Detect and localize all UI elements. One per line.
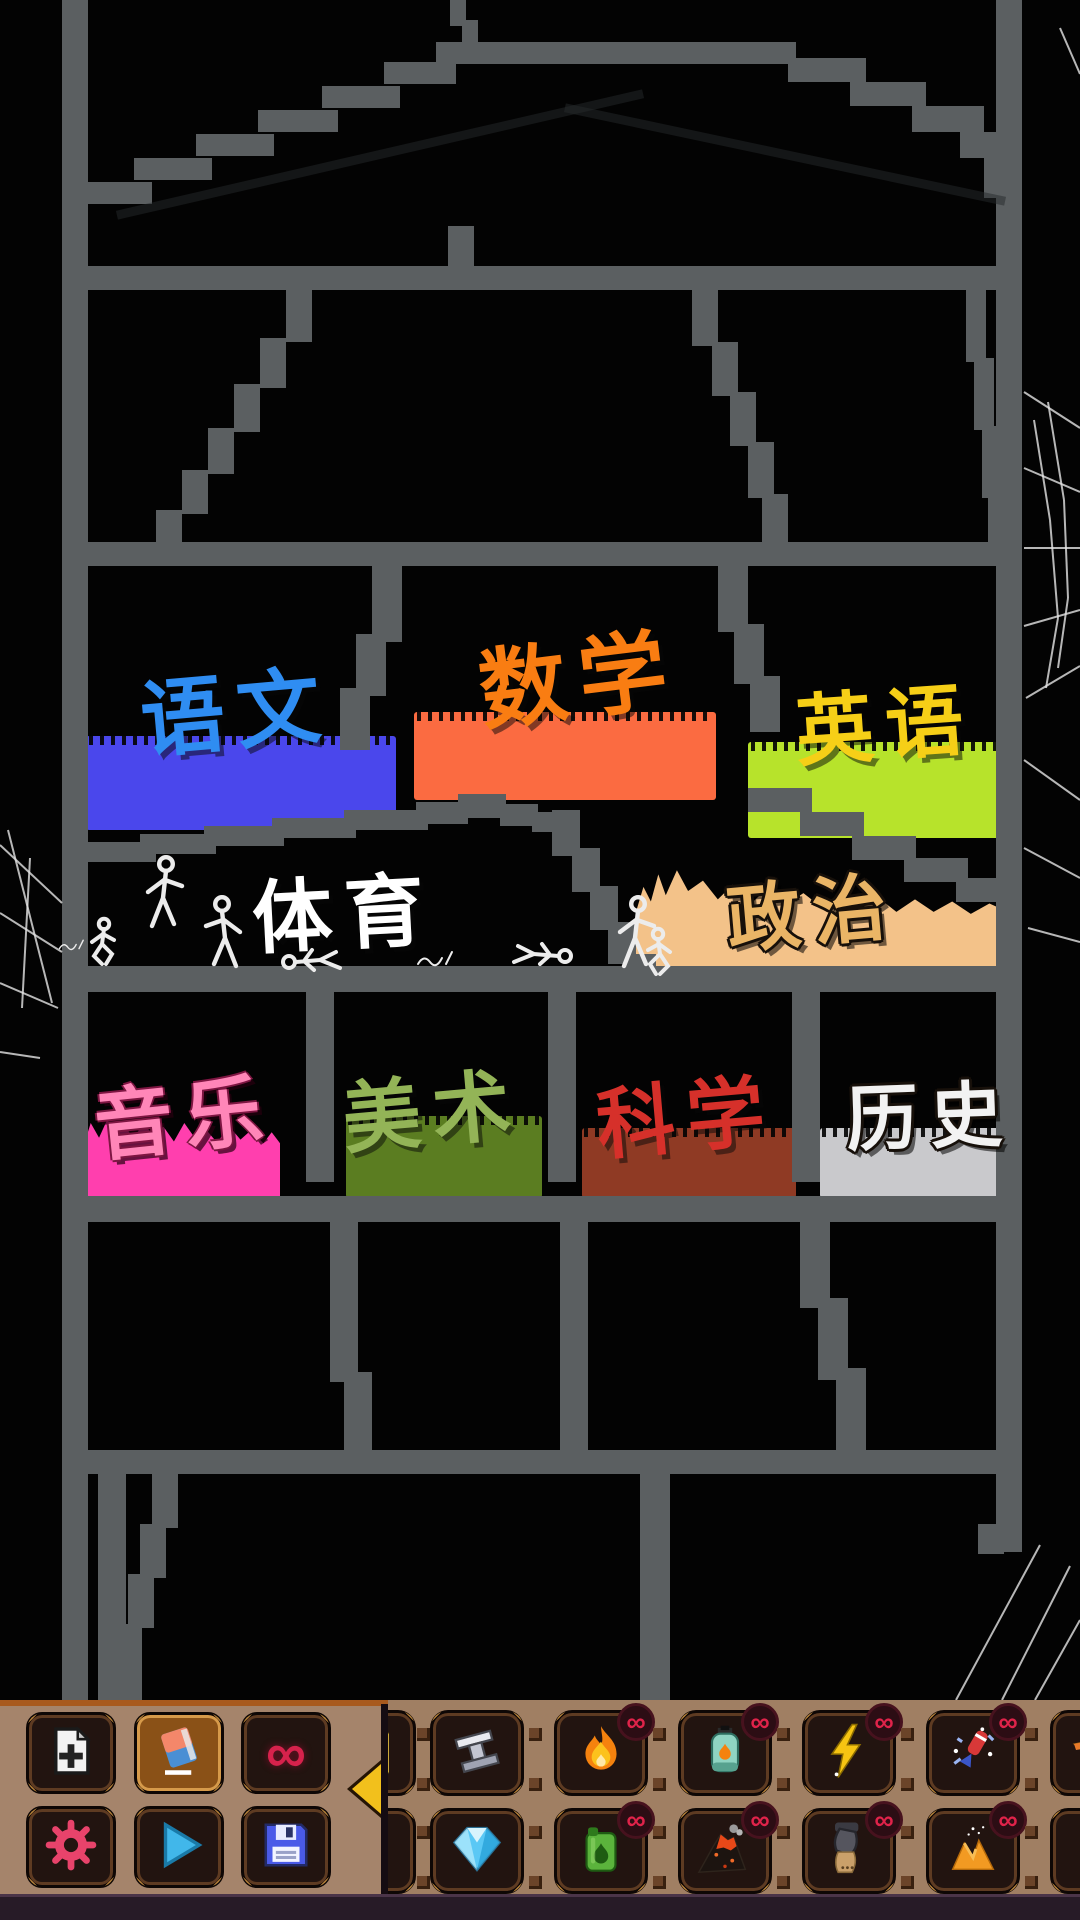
stick-figure[interactable] [416,944,456,975]
rivet-decoration [901,1778,914,1791]
rivet-decoration [417,1876,430,1889]
rivet-decoration [529,1778,542,1791]
wall-segment [286,290,312,342]
room-label-english: 英语 [791,658,978,782]
wall-segment [800,1222,830,1308]
palette-item-fire[interactable]: ∞ [554,1710,648,1796]
wall-segment [128,1574,154,1628]
infinity-badge: ∞ [989,1801,1027,1839]
wall-segment [560,1222,588,1454]
toolbar: ∞ ∞∞∞∞∞∞∞∞ [0,1700,1080,1920]
infinity-mode-icon: ∞ [266,1725,306,1781]
palette-item-gas-canister[interactable]: ∞ [678,1710,772,1796]
rivet-decoration [653,1728,666,1741]
infinity-badge: ∞ [741,1703,779,1741]
fuel-can-icon [575,1823,627,1880]
rivet-decoration [417,1728,430,1741]
palette-item-volcano[interactable]: ∞ [678,1808,772,1894]
wall-segment [62,266,1022,290]
wall-segment [258,110,338,132]
wall-segment [748,442,774,498]
play-icon [152,1818,206,1877]
wall-segment [330,1222,358,1382]
pizza-slice-icon [1072,1726,1080,1781]
palette-item-dynamite[interactable] [388,1808,416,1894]
zombie-hand-icon [1075,1821,1080,1882]
drink-can-icon [388,1723,389,1784]
rivet-decoration [653,1876,666,1889]
palette-item-pizza-slice[interactable] [1050,1710,1080,1796]
wall-segment [640,1474,670,1702]
stick-figure[interactable] [280,942,356,981]
settings-gear-button[interactable] [26,1806,116,1888]
steel-beam-icon [448,1722,506,1785]
wall-segment [996,0,1022,1552]
palette-item-sand-pile[interactable]: ∞ [926,1808,1020,1894]
wall-segment [730,392,756,446]
room-label-chinese: 语文 [135,638,337,775]
infinity-badge: ∞ [989,1703,1027,1741]
rivet-decoration [1025,1826,1038,1839]
eraser-book-icon [151,1723,207,1784]
rivet-decoration [1025,1728,1038,1741]
wall-segment [850,82,926,106]
wall-segment [974,358,994,430]
rivet-decoration [777,1826,790,1839]
stick-figure[interactable] [58,935,86,957]
rivet-decoration [901,1728,914,1741]
wall-segment [982,426,1002,498]
room-label-music: 音乐 [89,1047,280,1177]
wall-segment [182,470,208,514]
eraser-book-button[interactable] [134,1712,224,1794]
wall-segment [718,566,748,632]
settings-gear-icon [44,1818,98,1877]
game-canvas[interactable]: 语文 数学 英语 体育 政治 音乐 美术 科学 历史 ∞ ∞∞∞∞∞∞∞∞ [0,0,1080,1920]
wall-segment [436,42,796,64]
room-label-politics: 政治 [722,847,903,969]
wall-segment [72,182,152,204]
palette-item-zombie-hand[interactable] [1050,1808,1080,1894]
rivet-decoration [529,1826,542,1839]
rivet-decoration [1025,1778,1038,1791]
wall-segment [62,1450,1022,1474]
stick-figure[interactable] [638,926,678,983]
collapse-palette-arrow-icon[interactable] [352,1764,381,1814]
wall-segment [792,992,820,1182]
diamond-icon [448,1820,506,1883]
wall-segment [322,86,400,108]
wall-segment [978,1524,1004,1554]
rivet-decoration [653,1826,666,1839]
stick-figure[interactable] [194,894,250,985]
room-label-math: 数学 [471,598,685,748]
wall-segment [344,1372,372,1456]
infinity-badge: ∞ [617,1801,655,1839]
wall-segment [748,788,812,812]
play-button[interactable] [134,1806,224,1888]
rivet-decoration [417,1778,430,1791]
palette-item-firework[interactable]: ∞ [926,1710,1020,1796]
wall-segment [984,154,1022,198]
infinity-badge: ∞ [865,1703,903,1741]
wall-segment [788,58,866,82]
toolbar-bottom-strip [0,1894,1080,1920]
infinity-badge: ∞ [741,1801,779,1839]
palette-item-drink-can[interactable] [388,1710,416,1796]
rivet-decoration [653,1778,666,1791]
infinity-badge: ∞ [865,1801,903,1839]
wall-segment [234,384,260,432]
item-palette[interactable]: ∞∞∞∞∞∞∞∞ [388,1700,1080,1894]
stick-figure[interactable] [84,916,124,973]
wall-segment [140,1524,166,1578]
wall-segment [734,624,764,684]
rivet-decoration [529,1728,542,1741]
palette-item-cannon[interactable]: ∞ [802,1808,896,1894]
wall-segment [956,878,1010,902]
palette-item-diamond[interactable] [430,1808,524,1894]
room-label-science: 科学 [591,1048,780,1175]
infinity-icon: ∞ [266,1721,306,1784]
room-label-history: 历史 [844,1055,1016,1166]
rivet-decoration [417,1826,430,1839]
wall-segment [208,428,234,474]
tool-section: ∞ [0,1700,381,1894]
rivet-decoration [901,1876,914,1889]
wall-segment [340,688,370,750]
rivet-decoration [777,1876,790,1889]
wall-segment [62,542,1022,566]
rivet-decoration [1025,1876,1038,1889]
palette-item-steel-beam[interactable] [430,1710,524,1796]
rivet-decoration [901,1826,914,1839]
wall-segment [966,290,986,362]
wall-segment [196,134,274,156]
wall-segment [762,494,788,548]
new-file-icon [44,1724,98,1783]
wall-segment [372,566,402,642]
wall-segment [988,494,1008,548]
wall-segment [912,106,984,132]
gas-canister-icon [699,1725,751,1782]
wall-segment [712,342,738,396]
stick-figure[interactable] [498,936,574,975]
wall-segment [836,1368,866,1456]
palette-item-fuel-can[interactable]: ∞ [554,1808,648,1894]
room-label-art: 美术 [337,1042,526,1169]
wall-segment [306,992,334,1182]
wall-segment [152,1474,178,1528]
wall-segment [458,794,506,818]
save-button[interactable] [241,1806,331,1888]
palette-item-lightning[interactable]: ∞ [802,1710,896,1796]
wall-segment [692,290,718,346]
toolbar-divider [381,1704,388,1894]
wall-segment [116,1624,142,1702]
rivet-decoration [777,1778,790,1791]
infinity-mode-button[interactable]: ∞ [241,1712,331,1794]
rivet-decoration [777,1728,790,1741]
infinity-badge: ∞ [617,1703,655,1741]
wall-segment [62,1196,1022,1222]
wall-segment [800,812,864,836]
new-file-button[interactable] [26,1712,116,1794]
wall-segment [548,992,576,1182]
rivet-decoration [529,1876,542,1889]
wall-segment [384,62,456,84]
save-icon [259,1818,313,1877]
wall-segment [134,158,212,180]
wall-segment [750,676,780,732]
wall-segment [260,338,286,388]
wall-segment [356,634,386,696]
stick-figure[interactable] [138,854,194,945]
